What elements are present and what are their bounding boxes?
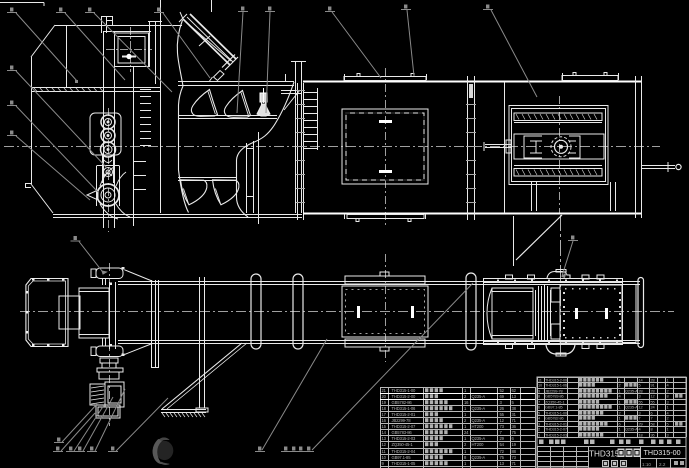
svg-text:8: 8 bbox=[667, 393, 669, 398]
svg-text:Q235-A: Q235-A bbox=[472, 394, 486, 399]
svg-text:THD315-1-00: THD315-1-00 bbox=[392, 388, 417, 393]
svg-text:8: 8 bbox=[651, 426, 653, 431]
svg-text:91: 91 bbox=[651, 382, 655, 387]
svg-text:8: 8 bbox=[538, 393, 540, 398]
svg-text:Q235-A: Q235-A bbox=[625, 388, 638, 393]
svg-text:THD315-2-01: THD315-2-01 bbox=[392, 412, 417, 417]
svg-text:7: 7 bbox=[639, 415, 641, 420]
svg-text:THD315-1-06: THD315-1-06 bbox=[545, 382, 567, 387]
svg-text:THD315-00: THD315-00 bbox=[644, 448, 681, 457]
svg-text:12: 12 bbox=[651, 393, 655, 398]
svg-text:Q235-A: Q235-A bbox=[472, 436, 486, 441]
svg-text:ZQ350-45-1: ZQ350-45-1 bbox=[392, 442, 414, 447]
svg-text:2: 2 bbox=[538, 426, 540, 431]
svg-text:Q235-A: Q235-A bbox=[625, 426, 638, 431]
svg-text:1: 1 bbox=[538, 432, 540, 437]
svg-text:GB97.1-85: GB97.1-85 bbox=[545, 404, 562, 409]
svg-text:THD315-2-03: THD315-2-03 bbox=[545, 432, 567, 437]
svg-text:2: 2 bbox=[667, 415, 669, 420]
svg-text:GB5783-86: GB5783-86 bbox=[392, 430, 413, 435]
svg-text:6: 6 bbox=[538, 404, 540, 409]
svg-text:36: 36 bbox=[651, 432, 655, 437]
svg-text:2: 2 bbox=[619, 382, 621, 387]
svg-text:2.2: 2.2 bbox=[659, 462, 666, 467]
svg-text:THD315-1-05: THD315-1-05 bbox=[392, 461, 417, 466]
svg-text:5: 5 bbox=[639, 382, 641, 387]
svg-text:THD315: THD315 bbox=[589, 450, 620, 459]
svg-text:1: 1 bbox=[619, 404, 621, 409]
svg-text:THD315-2-03: THD315-2-03 bbox=[392, 436, 417, 441]
svg-text:HT200: HT200 bbox=[472, 442, 485, 447]
svg-text:1: 1 bbox=[619, 426, 621, 431]
svg-text:THD315-2-04: THD315-2-04 bbox=[392, 449, 417, 454]
svg-text:1: 1 bbox=[667, 404, 669, 409]
svg-text:THD315-2-07: THD315-2-07 bbox=[392, 424, 417, 429]
svg-text:7: 7 bbox=[651, 415, 653, 420]
svg-text:HT200: HT200 bbox=[472, 424, 485, 429]
svg-text:Q235-A: Q235-A bbox=[472, 406, 486, 411]
svg-text:GB5782-86: GB5782-86 bbox=[392, 400, 413, 405]
svg-text:GB5783-86: GB5783-86 bbox=[545, 393, 564, 398]
svg-text:3: 3 bbox=[667, 432, 669, 437]
svg-text:GB5782-86: GB5782-86 bbox=[545, 415, 564, 420]
svg-text:THD315-1-06: THD315-1-06 bbox=[392, 406, 417, 411]
svg-text:1: 1 bbox=[667, 426, 669, 431]
svg-text:THD315-2-07: THD315-2-07 bbox=[545, 426, 567, 431]
svg-text:1: 1 bbox=[619, 415, 621, 420]
svg-text:1:10: 1:10 bbox=[642, 462, 651, 467]
svg-text:2: 2 bbox=[619, 432, 621, 437]
svg-text:Q235-A: Q235-A bbox=[625, 404, 638, 409]
svg-text:JB2299-78: JB2299-78 bbox=[392, 418, 412, 423]
svg-text:12: 12 bbox=[639, 404, 643, 409]
svg-text:THD315-2-00: THD315-2-00 bbox=[392, 394, 417, 399]
svg-text:3: 3 bbox=[639, 393, 641, 398]
svg-text:Q235-A: Q235-A bbox=[472, 455, 486, 460]
svg-text:Q235-A: Q235-A bbox=[472, 418, 486, 423]
svg-text:18: 18 bbox=[639, 432, 643, 437]
svg-text:GB97.1-85: GB97.1-85 bbox=[392, 455, 412, 460]
